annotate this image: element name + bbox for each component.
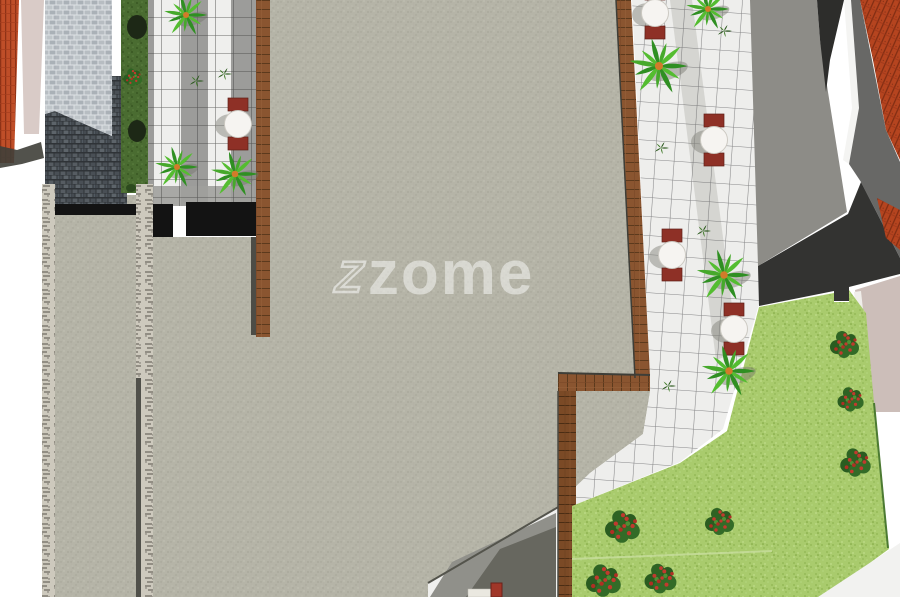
chair	[724, 303, 744, 316]
wall-black-large	[186, 202, 258, 236]
terrace-object	[468, 589, 492, 597]
roof-red-left	[0, 0, 19, 163]
chimney	[491, 583, 502, 597]
table-top	[225, 111, 252, 138]
chair	[662, 268, 682, 281]
wood-border-left-shadow	[251, 237, 256, 335]
hedge-strip	[121, 0, 150, 193]
chair	[228, 137, 248, 150]
stone-wall-left	[42, 184, 55, 597]
chair	[645, 26, 665, 39]
chair	[704, 114, 724, 127]
paving-pink-left	[21, 0, 44, 134]
site-plan-rendering: Z zome	[0, 0, 900, 597]
chair	[662, 229, 682, 242]
table-top	[701, 127, 728, 154]
chair	[704, 153, 724, 166]
site-plan-canvas	[0, 0, 900, 597]
stone-wall-mid-shadow	[136, 378, 141, 597]
chair	[228, 98, 248, 111]
wall-black-thin	[50, 204, 140, 215]
table-top	[642, 0, 669, 27]
wood-border-left	[256, 0, 270, 337]
table-top	[659, 242, 686, 269]
table-top	[721, 316, 748, 343]
wall-black-small	[152, 204, 173, 237]
